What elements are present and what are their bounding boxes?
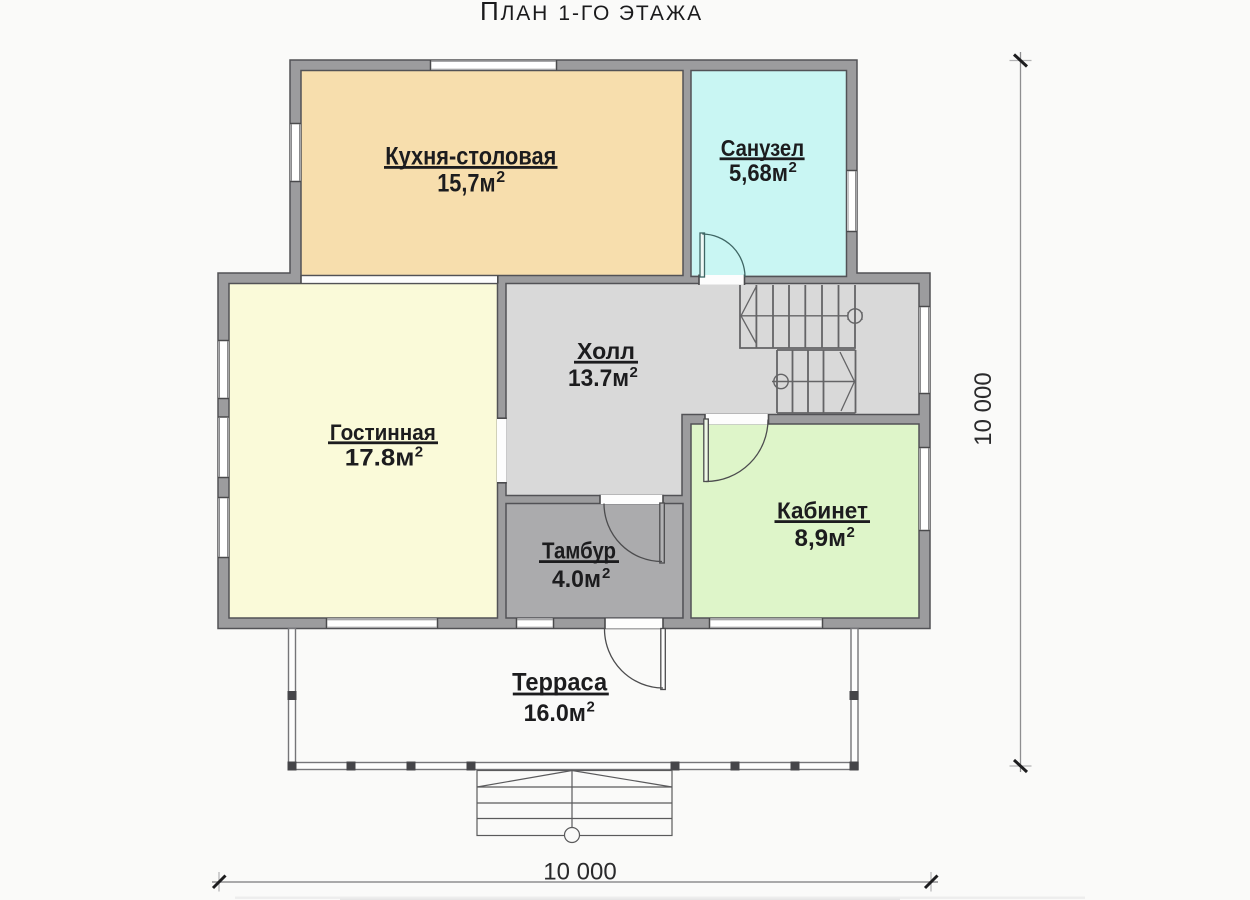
svg-text:2: 2 (587, 699, 595, 716)
svg-text:13.7м: 13.7м (568, 365, 629, 392)
svg-text:16.0м: 16.0м (524, 700, 586, 727)
svg-text:10 000: 10 000 (543, 859, 616, 886)
svg-text:8,9м: 8,9м (795, 525, 847, 552)
svg-text:4.0м: 4.0м (552, 566, 601, 593)
svg-text:5,68м: 5,68м (729, 160, 788, 187)
svg-text:Холл: Холл (577, 338, 635, 364)
svg-text:Терраса: Терраса (512, 669, 608, 697)
svg-text:10 000: 10 000 (970, 372, 997, 445)
svg-text:Тамбур: Тамбур (542, 537, 616, 563)
svg-text:Кабинет: Кабинет (777, 498, 868, 524)
svg-text:2: 2 (496, 169, 505, 186)
svg-text:Санузел: Санузел (721, 135, 804, 161)
svg-text:2: 2 (789, 159, 797, 176)
svg-text:2: 2 (602, 565, 610, 582)
svg-text:ПЛАН 1-ГО ЭТАЖА: ПЛАН 1-ГО ЭТАЖА (480, 0, 703, 26)
svg-text:15,7м: 15,7м (437, 170, 495, 198)
svg-text:Гостинная: Гостинная (330, 420, 436, 445)
svg-text:2: 2 (630, 364, 638, 381)
svg-text:2: 2 (847, 524, 855, 541)
svg-text:17.8м: 17.8м (345, 445, 415, 472)
svg-text:2: 2 (415, 444, 423, 461)
